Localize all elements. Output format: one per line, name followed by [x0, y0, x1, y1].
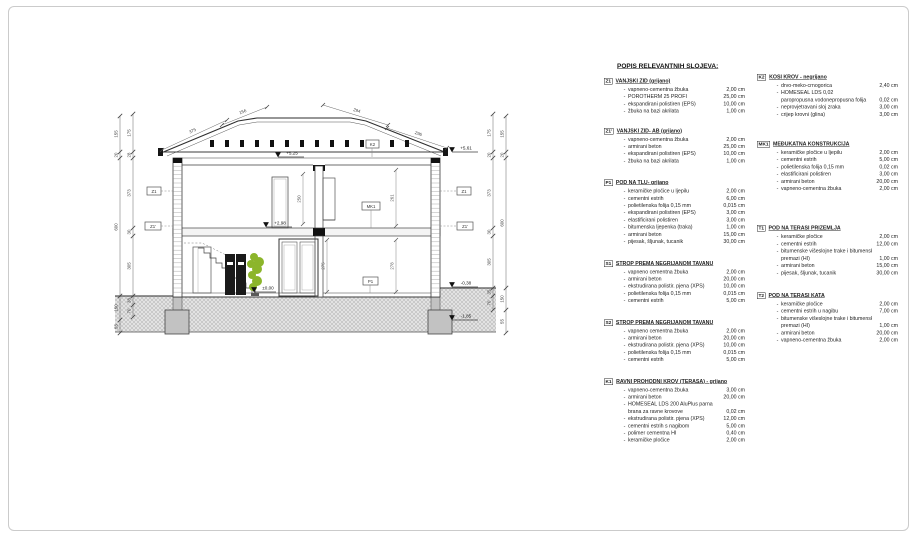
layer-item-value: 3,00 cm	[872, 104, 898, 111]
layer-section: K2KOSI KROV - negrijano-drvo-meko-crnogo…	[757, 74, 898, 118]
layer-item-name: bitumenske višeslojne trake i bitumenski	[781, 248, 872, 255]
bullet-dash: -	[774, 178, 781, 185]
layer-item-continuation: paropropusna vodonepropusna folija0,02 c…	[757, 96, 898, 103]
layer-item: -ekspandirani polistiren (EPS)10,00 cm	[604, 150, 745, 157]
layer-item-name: POROTHERM 25 PROFI	[628, 93, 719, 100]
bullet-dash: -	[774, 171, 781, 178]
layer-item-name: armirani beton	[628, 275, 719, 282]
svg-text:Z1': Z1'	[462, 224, 468, 229]
bullet-dash: -	[621, 283, 628, 290]
layer-title: STROP PREMA NEGRIJANOM TAVANU	[616, 319, 713, 325]
layer-item-name: HOMESEAL LDS 0,02	[781, 89, 872, 96]
layer-item: -pijesak, šljunak, tucanik30,00 cm	[604, 238, 745, 245]
svg-text:373: 373	[127, 189, 132, 197]
layer-item: -armirani beton20,00 cm	[604, 393, 745, 400]
svg-text:MK1: MK1	[367, 204, 376, 209]
layer-item-name: HOMESEAL LDS 200 AluPlus parna	[628, 401, 719, 408]
layer-item-value: 2,00 cm	[719, 268, 745, 275]
layer-code: T2	[757, 292, 766, 299]
layer-item: -cementni estrih s nagibom5,00 cm	[604, 422, 745, 429]
layer-section: K1RAVNI PROHODNI KROV (TERASA) - grijano…	[604, 378, 745, 444]
layer-item: -polietilenska folija 0,15 mm0,02 cm	[757, 163, 898, 170]
layer-item: -cementni estrih6,00 cm	[604, 195, 745, 202]
layer-item: -keramičke pločice2,00 cm	[757, 300, 898, 307]
layer-items: -vapneno-cementna žbuka2,00 cm-POROTHERM…	[604, 86, 745, 115]
bullet-dash: -	[621, 216, 628, 223]
layer-item-name: vapneno-cementna žbuka	[628, 386, 719, 393]
layer-item: -bitumenske višeslojne trake i bitumensk…	[757, 315, 898, 322]
svg-text:20: 20	[500, 152, 505, 157]
svg-text:-1,85: -1,85	[461, 313, 472, 318]
bullet-dash	[774, 96, 781, 103]
layer-item-value: 2,00 cm	[719, 188, 745, 195]
layer-items: -vapneno-cementna žbuka2,00 cm-armirani …	[604, 136, 745, 165]
bullet-dash: -	[621, 430, 628, 437]
layer-section: Z1'VANJSKI ZID- AB (grijano)-vapneno-cem…	[604, 128, 745, 165]
bullet-dash: -	[774, 82, 781, 89]
layer-item-value: 15,00 cm	[719, 231, 745, 238]
layer-item-value: 2,00 cm	[872, 149, 898, 156]
svg-text:Z1': Z1'	[150, 224, 156, 229]
layer-item-value: 0,015 cm	[719, 349, 745, 356]
layer-item-value: 10,00 cm	[719, 100, 745, 107]
bullet-dash: -	[621, 422, 628, 429]
layer-section: S1STROP PREMA NEGRIJANOM TAVANU-vapneno …	[604, 260, 745, 304]
svg-text:175: 175	[127, 129, 132, 137]
layer-section: P1POD NA TLU- grijano-keramičke pločice …	[604, 180, 745, 246]
svg-text:150: 150	[114, 304, 119, 312]
bullet-dash: -	[774, 248, 781, 255]
walls	[173, 158, 440, 297]
layer-item-name: vapneno cementna žbuka	[628, 327, 719, 334]
layer-item: -cementni estrih u nagibu7,00 cm	[757, 308, 898, 315]
layer-item-name: cementni estrih	[628, 297, 719, 304]
layer-item-value: 1,00 cm	[872, 322, 898, 329]
layer-item: -POROTHERM 25 PROFI25,00 cm	[604, 93, 745, 100]
layer-item-value	[872, 248, 898, 255]
interior-upper	[272, 166, 335, 228]
svg-text:30: 30	[487, 229, 492, 234]
layer-item: -ekstrudirana polistir. pjena (XPS)10,00…	[604, 342, 745, 349]
layer-code: Z1'	[604, 128, 614, 135]
layer-item-value: 2,00 cm	[872, 336, 898, 343]
bullet-dash: -	[621, 157, 628, 164]
layer-item-value: 30,00 cm	[872, 269, 898, 276]
layer-item-value: 2,40 cm	[872, 82, 898, 89]
layer-item: -ekstrudirana polistir. pjena (XPS)12,00…	[604, 415, 745, 422]
bullet-dash: -	[621, 224, 628, 231]
layer-section: S2STROP PREMA NEGRIJANOM TAVANU-vapneno …	[604, 319, 745, 363]
layer-title: RAVNI PROHODNI KROV (TERASA) - grijano	[616, 378, 727, 384]
bullet-dash: -	[621, 238, 628, 245]
layer-section-head: S1STROP PREMA NEGRIJANOM TAVANU	[604, 260, 745, 267]
svg-text:P1: P1	[368, 279, 374, 284]
layer-item-continuation: premazi (HI)1,00 cm	[757, 322, 898, 329]
layer-item-name: paropropusna vodonepropusna folija	[781, 96, 872, 103]
svg-text:600: 600	[500, 219, 505, 227]
layer-item-name: cementni estrih s nagibom	[628, 422, 719, 429]
bullet-dash: -	[621, 401, 628, 408]
bullet-dash: -	[621, 195, 628, 202]
bullet-dash: -	[621, 209, 628, 216]
layer-item-name: crijep krovni (glina)	[781, 111, 872, 118]
svg-text:305: 305	[487, 258, 492, 266]
layer-item: -armirani beton25,00 cm	[604, 143, 745, 150]
bullet-dash: -	[621, 275, 628, 282]
layer-item-value: 15,00 cm	[872, 262, 898, 269]
layer-item-name: vapneno cementna žbuka	[628, 268, 719, 275]
layer-item: -žbuka na bazi akrilata1,00 cm	[604, 157, 745, 164]
layer-item-value: 25,00 cm	[719, 93, 745, 100]
svg-text:20: 20	[114, 152, 119, 157]
bullet-dash: -	[621, 202, 628, 209]
layer-item-value: 0,40 cm	[719, 430, 745, 437]
layer-items: -keramičke pločice u ljepilu2,00 cm-ceme…	[757, 149, 898, 192]
bullet-dash: -	[621, 268, 628, 275]
bullet-dash	[774, 255, 781, 262]
layer-item-name: polimer cementna HI	[628, 430, 719, 437]
layer-item: -armirani beton20,00 cm	[604, 275, 745, 282]
layer-item: -armirani beton15,00 cm	[757, 262, 898, 269]
layer-item-name: cementni estrih	[781, 156, 872, 163]
layer-item-name: pijesak, šljunak, tucanik	[628, 238, 719, 245]
layer-item: -armirani beton20,00 cm	[604, 334, 745, 341]
layer-item: -vapneno-cementna žbuka2,00 cm	[604, 86, 745, 93]
layer-item: -keramičke pločice u ljepilu2,00 cm	[604, 188, 745, 195]
layer-item-value	[719, 401, 745, 408]
layer-item-name: bitumenska ljepenka (traka)	[628, 224, 719, 231]
layer-item-value: 20,00 cm	[719, 334, 745, 341]
layer-item-name: keramičke pločice	[781, 233, 872, 240]
svg-text:261: 261	[390, 194, 395, 202]
layer-item: -elastificirani polistiren3,00 cm	[604, 216, 745, 223]
cabinet	[225, 254, 246, 295]
svg-text:28: 28	[127, 152, 132, 157]
layer-item-name: armirani beton	[628, 231, 719, 238]
layer-item: -keramičke pločice2,00 cm	[757, 233, 898, 240]
layer-item-name: elastificirani polistiren	[628, 216, 719, 223]
layer-items: -vapneno cementna žbuka2,00 cm-armirani …	[604, 327, 745, 363]
layer-item-value: 3,00 cm	[719, 209, 745, 216]
layer-item: -armirani beton15,00 cm	[604, 231, 745, 238]
svg-text:155: 155	[500, 130, 505, 138]
layer-items: -keramičke pločice2,00 cm-cementni estri…	[757, 300, 898, 343]
layer-item-name: žbuka na bazi akrilata	[628, 108, 719, 115]
bullet-dash: -	[774, 308, 781, 315]
layer-item-value	[872, 89, 898, 96]
bullet-dash	[774, 322, 781, 329]
layer-item-value: 10,00 cm	[719, 150, 745, 157]
layer-code: P1	[604, 180, 613, 187]
layer-item-name: keramičke pločice	[781, 300, 872, 307]
layer-item-name: armirani beton	[628, 143, 719, 150]
layer-item-name: cementni estrih u nagibu	[781, 308, 872, 315]
layer-title: MEĐUKATNA KONSTRUKCIJA	[773, 141, 849, 147]
layer-items: -vapneno cementna žbuka2,00 cm-armirani …	[604, 268, 745, 304]
layer-section-head: T2POD NA TERASI KATA	[757, 292, 898, 299]
layer-item-value: 0,02 cm	[872, 163, 898, 170]
layer-item-name: keramičke pločice	[628, 437, 719, 444]
layer-item-name: ekspandirani polistiren (EPS)	[628, 100, 719, 107]
layer-item-value: 7,00 cm	[872, 308, 898, 315]
layer-item-name: vapneno-cementna žbuka	[781, 336, 872, 343]
layer-item: -polietilenska folija 0,15 mm0,015 cm	[604, 349, 745, 356]
layer-item: -žbuka na bazi akrilata1,00 cm	[604, 108, 745, 115]
layer-section-head: K2KOSI KROV - negrijano	[757, 74, 898, 81]
layer-item-name: vapneno-cementna žbuka	[628, 86, 719, 93]
layer-section-head: Z1'VANJSKI ZID- AB (grijano)	[604, 128, 745, 135]
bullet-dash: -	[774, 240, 781, 247]
layer-item-name: keramičke pločice u ljepilu	[628, 188, 719, 195]
bullet-dash: -	[774, 104, 781, 111]
layer-item-name: ekstrudirana polistir. pjena (XPS)	[628, 283, 719, 290]
layer-item-value	[872, 315, 898, 322]
layer-item-value: 2,00 cm	[872, 185, 898, 192]
layer-section-head: K1RAVNI PROHODNI KROV (TERASA) - grijano	[604, 378, 745, 385]
layer-item-name: polietilenska folija 0,15 mm	[781, 163, 872, 170]
layer-item: -vapneno-cementna žbuka3,00 cm	[604, 386, 745, 393]
layer-item: -vapneno-cementna žbuka2,00 cm	[604, 136, 745, 143]
layer-item-name: polietilenska folija 0,15 mm	[628, 349, 719, 356]
bullet-dash: -	[774, 149, 781, 156]
bullet-dash: -	[621, 356, 628, 363]
layer-section-head: T1POD NA TERASI PRIZEMLJA	[757, 225, 898, 232]
layer-item-value: 1,00 cm	[719, 224, 745, 231]
bullet-dash: -	[621, 342, 628, 349]
layer-item: -HOMESEAL LDS 0,02	[757, 89, 898, 96]
layer-item-name: premazi (HI)	[781, 322, 872, 329]
layer-section-head: MK1MEĐUKATNA KONSTRUKCIJA	[757, 141, 898, 148]
svg-text:600: 600	[114, 223, 119, 231]
layer-item: -bitumenska ljepenka (traka)1,00 cm	[604, 224, 745, 231]
svg-text:70: 70	[487, 300, 492, 305]
layer-item: -ekspandirani polistiren (EPS)3,00 cm	[604, 209, 745, 216]
layer-item-name: armirani beton	[781, 329, 872, 336]
legend-column-left: Z1VANJSKI ZID (grijano)-vapneno-cementna…	[604, 78, 745, 444]
svg-text:-0,38: -0,38	[461, 280, 472, 285]
layer-item-value: 2,00 cm	[719, 327, 745, 334]
layer-item: -pijesak, šljunak, tucanik30,00 cm	[757, 269, 898, 276]
bullet-dash: -	[621, 86, 628, 93]
layer-item-value: 10,00 cm	[719, 283, 745, 290]
layer-item-name: polietilenska folija 0,15 mm	[628, 290, 719, 297]
layer-section-head: P1POD NA TLU- grijano	[604, 180, 745, 187]
layer-item-value: 0,02 cm	[872, 96, 898, 103]
layer-item-name: brana za ravne krovove	[628, 408, 719, 415]
layer-title: VANJSKI ZID- AB (grijano)	[617, 128, 682, 134]
layer-section-head: S2STROP PREMA NEGRIJANOM TAVANU	[604, 319, 745, 326]
bullet-dash: -	[621, 290, 628, 297]
bullet-dash: -	[774, 111, 781, 118]
layer-items: -vapneno-cementna žbuka3,00 cm-armirani …	[604, 386, 745, 444]
layer-item-value: 3,00 cm	[872, 111, 898, 118]
layer-item: -cementni estrih5,00 cm	[757, 156, 898, 163]
svg-text:155: 155	[114, 130, 119, 138]
layer-item-value: 2,00 cm	[719, 437, 745, 444]
layer-item-name: žbuka na bazi akrilata	[628, 157, 719, 164]
layer-item-value: 2,00 cm	[719, 136, 745, 143]
layer-item-value: 20,00 cm	[872, 178, 898, 185]
layer-title: POD NA TERASI KATA	[769, 292, 825, 298]
bullet-dash: -	[621, 150, 628, 157]
svg-text:±0,00: ±0,00	[262, 285, 274, 290]
bullet-dash: -	[774, 89, 781, 96]
bullet-dash: -	[621, 100, 628, 107]
svg-text:175: 175	[487, 129, 492, 137]
layer-item: -ekstrudirana polistir. pjena (XPS)10,00…	[604, 283, 745, 290]
layer-item: -cementni estrih12,00 cm	[757, 240, 898, 247]
bullet-dash: -	[621, 108, 628, 115]
svg-text:+2,98: +2,98	[274, 220, 286, 225]
layer-item: -vapneno-cementna žbuka2,00 cm	[757, 336, 898, 343]
bullet-dash: -	[621, 415, 628, 422]
legend-column-right: K2KOSI KROV - negrijano-drvo-meko-crnogo…	[757, 74, 898, 344]
layer-item-name: neprovjetravani sloj zraka	[781, 104, 872, 111]
layer-item: -vapneno cementna žbuka2,00 cm	[604, 268, 745, 275]
layer-item-name: keramičke pločice u ljepilu	[781, 149, 872, 156]
svg-text:20: 20	[487, 152, 492, 157]
layer-item-value: 0,02 cm	[719, 408, 745, 415]
layer-item-value: 5,00 cm	[872, 156, 898, 163]
layer-code: T1	[757, 225, 766, 232]
floor-slabs	[173, 165, 440, 297]
bullet-dash: -	[621, 334, 628, 341]
layer-item-value: 20,00 cm	[719, 393, 745, 400]
layer-item-value: 1,00 cm	[719, 157, 745, 164]
layer-item: -keramičke pločice2,00 cm	[604, 437, 745, 444]
svg-text:35: 35	[487, 289, 492, 294]
layer-title: VANJSKI ZID (grijano)	[616, 78, 671, 84]
bullet-dash: -	[621, 188, 628, 195]
layer-item-value: 5,00 cm	[719, 422, 745, 429]
layer-item: -cementni estrih5,00 cm	[604, 297, 745, 304]
svg-text:275: 275	[321, 262, 326, 270]
layer-item-value: 1,00 cm	[872, 255, 898, 262]
layer-item-value: 3,00 cm	[719, 216, 745, 223]
layer-title: KOSI KROV - negrijano	[769, 74, 827, 80]
layer-item-value: 2,00 cm	[872, 233, 898, 240]
layer-item-name: pijesak, šljunak, tucanik	[781, 269, 872, 276]
bullet-dash: -	[621, 143, 628, 150]
layer-code: S2	[604, 319, 613, 326]
bullet-dash: -	[621, 136, 628, 143]
svg-text:156: 156	[238, 108, 247, 116]
layer-item-name: ekstrudirana polistir. pjena (XPS)	[628, 415, 719, 422]
layer-item-value: 3,00 cm	[872, 171, 898, 178]
layer-item-value: 1,00 cm	[719, 108, 745, 115]
bullet-dash: -	[621, 437, 628, 444]
ref-boxes: Z1Z1'Z1Z1'K2MK1P1	[145, 140, 473, 293]
bullet-dash: -	[774, 300, 781, 307]
layer-section-head: Z1VANJSKI ZID (grijano)	[604, 78, 745, 85]
bullet-dash: -	[621, 93, 628, 100]
layer-item-name: drvo-meko-crnogorica	[781, 82, 872, 89]
bullet-dash: -	[774, 163, 781, 170]
layer-title: POD NA TLU- grijano	[616, 180, 669, 186]
layer-item-name: vapneno-cementna žbuka	[628, 136, 719, 143]
svg-text:278: 278	[390, 262, 395, 270]
layer-item-name: cementni estrih	[628, 356, 719, 363]
layer-item: -crijep krovni (glina)3,00 cm	[757, 111, 898, 118]
layer-item-value: 5,00 cm	[719, 297, 745, 304]
layer-item: -polietilenska folija 0,15 mm0,015 cm	[604, 290, 745, 297]
layer-code: K2	[757, 74, 766, 81]
layer-item-name: polietilenska folija 0,15 mm	[628, 202, 719, 209]
svg-text:+5,25: +5,25	[286, 150, 298, 155]
layer-item: -cementni estrih5,00 cm	[604, 356, 745, 363]
layer-code: S1	[604, 260, 613, 267]
layer-item-name: ekspandirani polistiren (EPS)	[628, 209, 719, 216]
layer-item-name: armirani beton	[781, 178, 872, 185]
bullet-dash: -	[774, 185, 781, 192]
layer-item-value: 5,00 cm	[719, 356, 745, 363]
layer-item-name: cementni estrih	[781, 240, 872, 247]
layer-item-value: 20,00 cm	[719, 275, 745, 282]
layer-item-continuation: premazi (HI)1,00 cm	[757, 255, 898, 262]
layer-item: -vapneno-cementna žbuka2,00 cm	[757, 185, 898, 192]
svg-text:55: 55	[500, 319, 505, 324]
layer-section: MK1MEĐUKATNA KONSTRUKCIJA-keramičke ploč…	[757, 141, 898, 192]
layer-item: -polimer cementna HI0,40 cm	[604, 430, 745, 437]
layer-item: -keramičke pločice u ljepilu2,00 cm	[757, 149, 898, 156]
layer-item-name: bitumenske višeslojne trake i bitumenski	[781, 315, 872, 322]
layer-item: -HOMESEAL LDS 200 AluPlus parna	[604, 401, 745, 408]
layer-item-name: ekstrudirana polistir. pjena (XPS)	[628, 342, 719, 349]
layer-item-value: 2,00 cm	[719, 86, 745, 93]
bullet-dash: -	[774, 269, 781, 276]
layer-items: -keramičke pločice2,00 cm-cementni estri…	[757, 233, 898, 276]
svg-text:373: 373	[487, 189, 492, 197]
layer-item: -armirani beton20,00 cm	[757, 329, 898, 336]
svg-text:250: 250	[297, 195, 302, 203]
glass-door	[279, 239, 318, 296]
svg-text:+5,61: +5,61	[460, 145, 472, 150]
bullet-dash: -	[621, 327, 628, 334]
svg-text:305: 305	[127, 262, 132, 270]
layer-items: -keramičke pločice u ljepilu2,00 cm-ceme…	[604, 188, 745, 246]
layer-code: K1	[604, 378, 613, 385]
roof	[158, 118, 448, 158]
layer-item-name: armirani beton	[628, 393, 719, 400]
layer-item-value: 3,00 cm	[719, 386, 745, 393]
layer-item: -elastificirani polistiren3,00 cm	[757, 171, 898, 178]
layer-section: Z1VANJSKI ZID (grijano)-vapneno-cementna…	[604, 78, 745, 115]
layer-item-name: vapneno-cementna žbuka	[781, 185, 872, 192]
layer-item: -vapneno cementna žbuka2,00 cm	[604, 327, 745, 334]
layer-section: T2POD NA TERASI KATA-keramičke pločice2,…	[757, 292, 898, 343]
svg-text:38: 38	[127, 298, 132, 303]
layer-item-value: 2,00 cm	[872, 300, 898, 307]
svg-text:70: 70	[127, 308, 132, 313]
layer-section: T1POD NA TERASI PRIZEMLJA-keramičke ploč…	[757, 225, 898, 276]
svg-text:30: 30	[127, 229, 132, 234]
layer-item-continuation: brana za ravne krovove0,02 cm	[604, 408, 745, 415]
layer-title: POD NA TERASI PRIZEMLJA	[769, 225, 841, 231]
bullet-dash: -	[621, 393, 628, 400]
bullet-dash: -	[774, 336, 781, 343]
layer-item-name: elastificirani polistiren	[781, 171, 872, 178]
bullet-dash: -	[621, 231, 628, 238]
layer-item-value: 6,00 cm	[719, 195, 745, 202]
layer-item-name: ekspandirani polistiren (EPS)	[628, 150, 719, 157]
svg-text:55: 55	[114, 324, 119, 329]
layer-item-value: 0,015 cm	[719, 202, 745, 209]
legend-title: POPIS RELEVANTNIH SLOJEVA:	[617, 62, 718, 70]
bullet-dash: -	[774, 262, 781, 269]
bullet-dash: -	[621, 386, 628, 393]
svg-text:Z1: Z1	[151, 189, 157, 194]
svg-text:294: 294	[353, 107, 362, 114]
